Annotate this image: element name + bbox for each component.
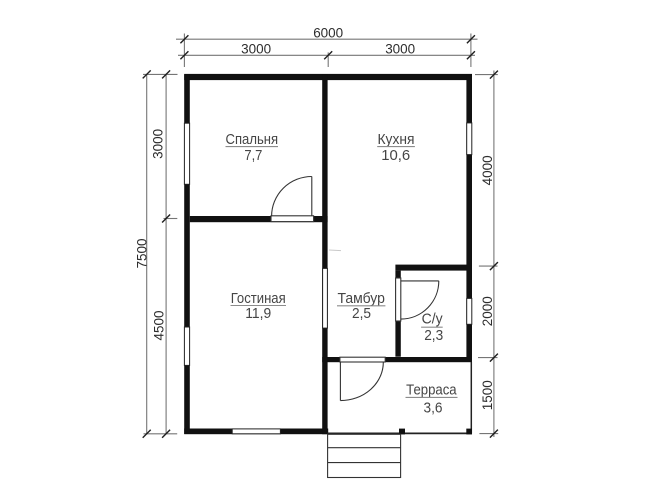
svg-text:С/у: С/у xyxy=(422,311,443,328)
svg-text:7500: 7500 xyxy=(135,239,150,269)
svg-text:Кухня: Кухня xyxy=(378,131,415,148)
svg-text:11,9: 11,9 xyxy=(245,305,271,322)
svg-text:1500: 1500 xyxy=(480,380,495,410)
svg-text:3000: 3000 xyxy=(385,42,415,57)
svg-text:2,3: 2,3 xyxy=(424,327,443,344)
svg-text:4500: 4500 xyxy=(151,311,166,341)
svg-text:3000: 3000 xyxy=(151,129,166,159)
svg-text:4000: 4000 xyxy=(480,155,495,185)
svg-text:7,7: 7,7 xyxy=(244,147,262,164)
svg-text:2,5: 2,5 xyxy=(352,305,371,322)
svg-text:10,6: 10,6 xyxy=(381,147,410,164)
svg-text:2000: 2000 xyxy=(480,296,495,326)
svg-text:Спальня: Спальня xyxy=(226,131,279,148)
svg-text:3000: 3000 xyxy=(241,42,271,57)
svg-text:3,6: 3,6 xyxy=(424,399,443,416)
svg-text:Терраса: Терраса xyxy=(406,382,457,399)
svg-text:6000: 6000 xyxy=(313,26,343,41)
